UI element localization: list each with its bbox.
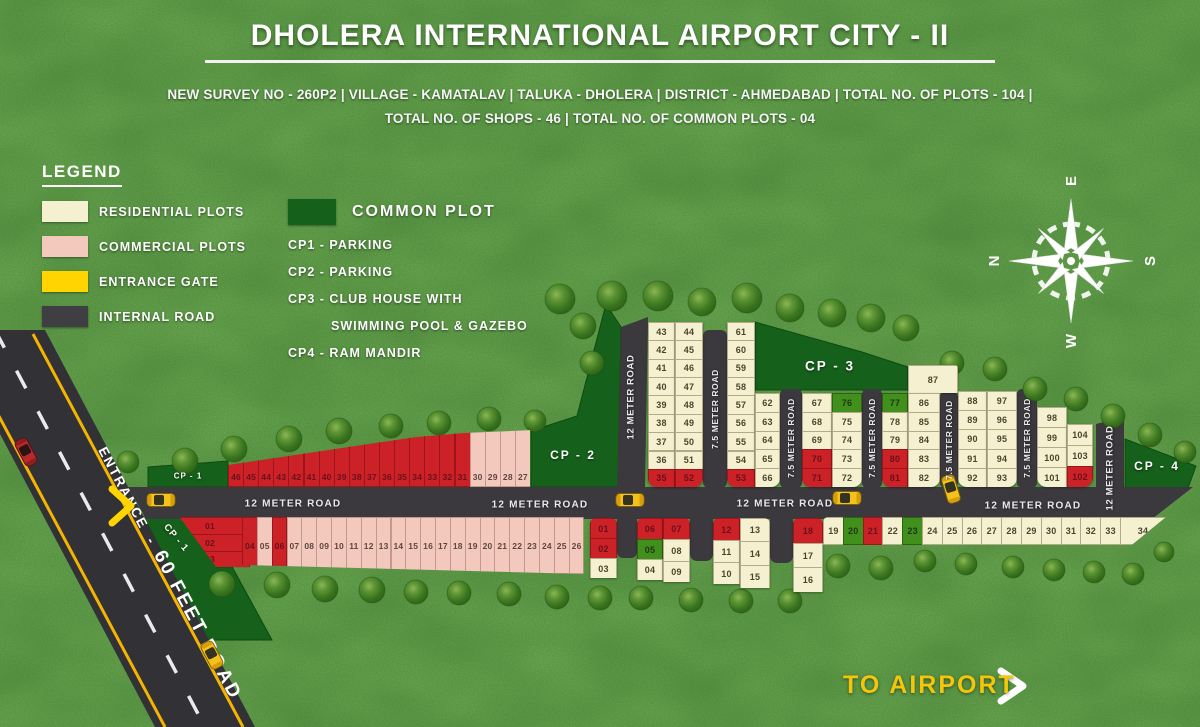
plot-50: 50 [675, 432, 703, 451]
plot-number: 19 [468, 541, 478, 551]
title-underline [205, 60, 995, 63]
plot-number: 42 [656, 345, 666, 355]
plot-17: 17 [793, 543, 823, 569]
shop-09: 09 [316, 517, 332, 574]
legend-title: LEGEND [42, 162, 122, 187]
plot-number: 55 [736, 437, 746, 447]
road-label-7.5m: 7.5 METER ROAD [786, 398, 796, 478]
road-label-7.5m: 7.5 METER ROAD [710, 369, 720, 449]
shop-07: 07 [287, 517, 303, 574]
plot-43: 43 [648, 322, 675, 341]
plot-33: 33 [1100, 517, 1121, 545]
plot-21: 21 [863, 517, 884, 545]
shop-43: 43 [273, 429, 289, 487]
plot-number: 89 [967, 415, 977, 425]
plot-number: 35 [656, 473, 666, 483]
plot-number: 40 [656, 382, 666, 392]
plot-number: 57 [736, 400, 746, 410]
shop-29: 29 [485, 429, 501, 487]
plot-number: 41 [656, 363, 666, 373]
plot-63: 63 [755, 412, 780, 432]
plot-97: 97 [987, 391, 1017, 411]
plot-47: 47 [675, 377, 703, 396]
plot-number: 07 [671, 524, 681, 534]
plot-number: 92 [967, 473, 977, 483]
plot-number: 93 [997, 473, 1007, 483]
plot-number: 87 [928, 375, 938, 385]
plot-number: 45 [246, 472, 256, 482]
shop-27: 27 [515, 429, 530, 487]
survey-info-line2: TOTAL NO. OF SHOPS - 46 | TOTAL NO. OF C… [0, 111, 1200, 126]
plot-number: 30 [473, 472, 483, 482]
plot-number: 72 [842, 473, 852, 483]
shop-31: 31 [455, 429, 471, 487]
plot-number: 22 [888, 526, 898, 536]
plot-number: 75 [842, 417, 852, 427]
plot-number: 11 [722, 547, 732, 557]
plot-number: 37 [367, 472, 377, 482]
shop-42: 42 [288, 429, 304, 487]
plot-06: 06 [637, 518, 663, 540]
plot-number: 50 [684, 437, 694, 447]
plot-number: 14 [393, 541, 403, 551]
plot-grid: 4342414039383736354445464748495051526160… [0, 0, 1200, 727]
shop-10: 10 [331, 517, 347, 574]
plot-07: 07 [663, 518, 690, 540]
plot-group-shopsBottom: 0405060708091011121314151617181920212223… [242, 517, 584, 574]
plot-number: 80 [890, 454, 900, 464]
page-title: DHOLERA INTERNATIONAL AIRPORT CITY - II [0, 19, 1200, 53]
plot-02: 02 [590, 538, 617, 559]
common-plot-swatch [288, 199, 336, 225]
plot-04: 04 [637, 559, 663, 580]
shop-14: 14 [391, 517, 407, 574]
plot-number: 19 [828, 526, 838, 536]
plot-22: 22 [882, 517, 903, 545]
plot-number: 38 [656, 418, 666, 428]
plot-number: 29 [488, 472, 498, 482]
plot-05: 05 [637, 539, 663, 561]
shop-35: 35 [394, 429, 410, 487]
plot-number: 38 [352, 472, 362, 482]
plot-29: 29 [1021, 517, 1042, 545]
to-airport-label: TO AIRPORT [843, 671, 1016, 700]
shop-41: 41 [304, 429, 320, 487]
plot-76: 76 [832, 393, 862, 413]
internal-road-swatch [42, 306, 88, 327]
plot-27: 27 [981, 517, 1002, 545]
plot-104: 104 [1067, 424, 1093, 446]
shop-30: 30 [470, 429, 486, 487]
plot-number: 10 [721, 569, 731, 579]
plot-01: 01 [590, 518, 617, 539]
plot-59: 59 [727, 359, 755, 378]
plot-67: 67 [802, 393, 832, 413]
shop-20: 20 [480, 517, 496, 574]
shop-06: 06 [272, 517, 288, 574]
plot-69: 69 [802, 431, 832, 451]
plot-number: 40 [322, 472, 332, 482]
plot-number: 48 [684, 400, 694, 410]
plot-number: 56 [736, 418, 746, 428]
plot-35: 35 [648, 469, 675, 487]
plot-23: 23 [902, 517, 923, 545]
plot-number: 69 [812, 435, 822, 445]
plot-number: 28 [503, 472, 513, 482]
plot-number: 77 [890, 398, 900, 408]
plot-number: 11 [349, 541, 358, 551]
residential-swatch [42, 201, 88, 222]
plot-number: 99 [1047, 433, 1057, 443]
plot-number: 85 [919, 417, 929, 427]
plot-number: 41 [307, 472, 317, 482]
plot-number: 13 [750, 525, 760, 535]
shop-34: 34 [409, 429, 425, 487]
shop-18: 18 [450, 517, 466, 574]
plot-number: 24 [927, 526, 937, 536]
road-label-7.5m: 7.5 METER ROAD [867, 398, 877, 478]
shop-44: 44 [258, 429, 274, 487]
shop-36: 36 [379, 429, 395, 487]
shop-45: 45 [243, 429, 259, 487]
plot-72: 72 [832, 468, 862, 487]
plot-44: 44 [675, 322, 703, 341]
plot-number: 20 [483, 541, 493, 551]
shop-40: 40 [319, 429, 335, 487]
shop-13: 13 [376, 517, 392, 574]
shop-38: 38 [349, 429, 365, 487]
legend-item-internal-road: INTERNAL ROAD [42, 306, 246, 327]
plot-number: 27 [518, 472, 528, 482]
plot-10: 10 [713, 562, 740, 584]
plot-number: 31 [458, 472, 468, 482]
plot-number: 12 [721, 525, 731, 535]
plot-number: 35 [397, 472, 407, 482]
plot-number: 36 [382, 472, 392, 482]
plot-number: 44 [684, 327, 694, 337]
plot-09: 09 [663, 561, 690, 582]
plot-80: 80 [882, 449, 908, 469]
plot-96: 96 [987, 410, 1017, 430]
plot-number: 60 [736, 345, 746, 355]
plot-number: 68 [812, 417, 822, 427]
road-label-12m: 12 METER ROAD [245, 499, 342, 510]
plot-78: 78 [882, 412, 908, 432]
plot-number: 39 [656, 400, 666, 410]
plot-39: 39 [648, 395, 675, 414]
shop-05: 05 [257, 517, 273, 574]
plot-number: 64 [762, 435, 772, 445]
plot-number: 06 [275, 541, 285, 551]
plot-number: 54 [736, 455, 746, 465]
plot-number: 04 [645, 565, 655, 575]
plot-number: 83 [919, 454, 929, 464]
plot-number: 100 [1044, 453, 1060, 463]
plot-group-shopsTop: 4645444342414039383736353433323130292827 [228, 429, 530, 487]
shop-33: 33 [424, 429, 440, 487]
plot-number: 05 [645, 545, 655, 555]
plot-70: 70 [802, 449, 832, 469]
plot-number: 104 [1072, 430, 1088, 440]
plot-46: 46 [675, 359, 703, 378]
plot-64: 64 [755, 431, 780, 451]
plot-group-colE: 6768697071 [802, 393, 832, 487]
plot-number: 01 [598, 524, 608, 534]
plot-93: 93 [987, 468, 1017, 487]
plot-number: 37 [656, 437, 666, 447]
plot-group-row19: 19202122232425262728293031323334 [823, 517, 1166, 545]
plot-number: 61 [736, 327, 746, 337]
plot-18: 18 [793, 518, 823, 544]
shop-19: 19 [465, 517, 481, 574]
plot-group-b3a: 121110 [713, 518, 740, 584]
plot-number: 90 [967, 434, 977, 444]
plot-number: 02 [205, 538, 215, 548]
plot-number: 43 [276, 472, 286, 482]
road-label-12m: 12 METER ROAD [492, 500, 589, 511]
plot-40: 40 [648, 377, 675, 396]
plot-number: 23 [527, 541, 537, 551]
plot-number: 81 [890, 473, 900, 483]
plot-number: 31 [1066, 526, 1076, 536]
road-label-12m-vertical: 12 METER ROAD [1105, 426, 1116, 511]
plot-number: 30 [1046, 526, 1056, 536]
plot-number: 39 [337, 472, 347, 482]
plot-number: 05 [260, 541, 270, 551]
plot-12: 12 [713, 518, 740, 541]
shop-12: 12 [361, 517, 377, 574]
plot-number: 03 [205, 554, 215, 564]
plot-34: 34 [1120, 517, 1166, 545]
shop-37: 37 [364, 429, 380, 487]
plot-number: 62 [762, 398, 772, 408]
plot-88: 88 [958, 391, 987, 411]
plot-number: 52 [684, 473, 694, 483]
plot-group-colD: 6263646566 [755, 393, 780, 487]
legend-item-residential: RESIDENTIAL PLOTS [42, 201, 246, 222]
plot-group-b2b: 070809 [663, 518, 690, 582]
site-layout-map: ENTRANCE - 60 FEET ROAD [0, 0, 1200, 727]
plot-number: 28 [1006, 526, 1016, 536]
plot-49: 49 [675, 414, 703, 433]
plot-group-colL: 104103102 [1067, 424, 1093, 487]
plot-number: 20 [848, 526, 858, 536]
plot-number: 98 [1047, 413, 1057, 423]
plot-number: 34 [1138, 526, 1148, 536]
plot-number: 49 [684, 418, 694, 428]
plot-group-colK: 9899100101 [1037, 407, 1067, 487]
plot-number: 101 [1044, 473, 1060, 483]
plot-45: 45 [675, 340, 703, 359]
road-label-7.5m: 7.5 METER ROAD [1022, 398, 1032, 478]
plot-number: 74 [842, 435, 852, 445]
plot-number: 26 [572, 541, 582, 551]
plot-number: 34 [412, 472, 422, 482]
plot-13: 13 [740, 518, 770, 542]
plot-number: 103 [1072, 451, 1088, 461]
plot-number: 14 [750, 549, 760, 559]
plot-number: 15 [408, 541, 418, 551]
shop-25: 25 [554, 517, 570, 574]
plot-number: 76 [842, 398, 852, 408]
plot-number: 18 [453, 541, 463, 551]
plot-86: 86 [908, 393, 940, 413]
plot-98: 98 [1037, 407, 1067, 428]
plot-group-colC: 616059585756555453 [727, 322, 755, 487]
plot-number: 08 [671, 546, 681, 556]
plot-90: 90 [958, 429, 987, 449]
survey-info-line1: NEW SURVEY NO - 260P2 | VILLAGE - KAMATA… [0, 87, 1200, 102]
plot-38: 38 [648, 414, 675, 433]
shop-11: 11 [346, 517, 362, 574]
cp1-upper-label: CP - 1 [174, 472, 203, 481]
plot-14: 14 [740, 541, 770, 565]
plot-number: 33 [427, 472, 437, 482]
plot-number: 21 [497, 541, 507, 551]
plot-number: 44 [261, 472, 271, 482]
plot-61: 61 [727, 322, 755, 341]
plot-group-colH: 8685848382 [908, 393, 940, 487]
plot-92: 92 [958, 468, 987, 487]
cp3-note: CP3 - CLUB HOUSE WITH [288, 292, 528, 306]
legend: LEGEND RESIDENTIAL PLOTS COMMERCIAL PLOT… [42, 162, 246, 327]
plot-48: 48 [675, 395, 703, 414]
plot-53: 53 [727, 469, 755, 487]
shop-28: 28 [500, 429, 516, 487]
plot-number: 02 [598, 544, 608, 554]
plot-57: 57 [727, 395, 755, 414]
plot-number: 13 [379, 541, 389, 551]
plot-number: 04 [245, 541, 255, 551]
shop-16: 16 [420, 517, 436, 574]
cp2-label: CP - 2 [550, 448, 596, 462]
plot-100: 100 [1037, 447, 1067, 468]
plot-number: 102 [1072, 472, 1088, 482]
plot-number: 17 [438, 541, 448, 551]
plot-number: 27 [987, 526, 997, 536]
plot-65: 65 [755, 449, 780, 469]
plot-number: 25 [947, 526, 957, 536]
plot-75: 75 [832, 412, 862, 432]
plot-number: 32 [1086, 526, 1096, 536]
legend-item-entrance-gate: ENTRANCE GATE [42, 271, 246, 292]
plot-36: 36 [648, 451, 675, 470]
plot-number: 09 [671, 567, 681, 577]
road-label-7.5m: 7.5 METER ROAD [944, 400, 954, 480]
plot-71: 71 [802, 468, 832, 487]
road-label-12m: 12 METER ROAD [737, 499, 834, 510]
plot-number: 86 [919, 398, 929, 408]
plot-group-b3b: 131415 [740, 518, 770, 588]
shop-01: 01 [170, 517, 250, 535]
plot-25: 25 [942, 517, 963, 545]
cp4-note: CP4 - RAM MANDIR [288, 346, 528, 360]
plot-number: 24 [542, 541, 552, 551]
plot-number: 43 [656, 327, 666, 337]
plot-08: 08 [663, 539, 690, 561]
plot-103: 103 [1067, 445, 1093, 467]
plot-60: 60 [727, 340, 755, 359]
shop-46: 46 [228, 429, 244, 487]
plot-84: 84 [908, 431, 940, 451]
plot-number: 79 [890, 435, 900, 445]
plot-number: 01 [205, 521, 215, 531]
shop-21: 21 [494, 517, 510, 574]
plot-group-p87: 87 [908, 365, 958, 393]
plot-number: 08 [304, 541, 314, 551]
commercial-swatch [42, 236, 88, 257]
road-label-12m-vertical: 12 METER ROAD [626, 355, 637, 440]
plot-11: 11 [713, 540, 740, 563]
plot-number: 97 [997, 396, 1007, 406]
plot-91: 91 [958, 449, 987, 469]
plot-number: 29 [1026, 526, 1036, 536]
plot-19: 19 [823, 517, 844, 545]
plot-82: 82 [908, 468, 940, 487]
plot-95: 95 [987, 429, 1017, 449]
shop-08: 08 [301, 517, 317, 574]
plot-number: 51 [684, 455, 694, 465]
shop-39: 39 [334, 429, 350, 487]
plot-number: 47 [684, 382, 694, 392]
plot-number: 22 [512, 541, 522, 551]
plot-number: 25 [557, 541, 567, 551]
plot-52: 52 [675, 469, 703, 487]
plot-99: 99 [1037, 427, 1067, 448]
plot-16: 16 [793, 567, 823, 592]
plot-number: 71 [812, 473, 822, 483]
plot-number: 95 [997, 434, 1007, 444]
plot-number: 32 [443, 472, 453, 482]
plot-number: 17 [803, 551, 813, 561]
plot-number: 07 [289, 541, 299, 551]
plot-number: 45 [684, 345, 694, 355]
plot-number: 84 [919, 435, 929, 445]
plot-group-colA: 434241403938373635 [648, 322, 675, 487]
plot-102: 102 [1067, 466, 1093, 487]
plot-03: 03 [590, 558, 617, 578]
plot-28: 28 [1001, 517, 1022, 545]
plot-15: 15 [740, 565, 770, 588]
plot-79: 79 [882, 431, 908, 451]
plot-number: 26 [967, 526, 977, 536]
plot-group-colF: 7675747372 [832, 393, 862, 487]
plot-group-b4: 181716 [793, 518, 823, 592]
plot-26: 26 [962, 517, 983, 545]
plot-31: 31 [1061, 517, 1082, 545]
plot-group-b1: 010203 [590, 518, 617, 578]
plot-number: 21 [868, 526, 878, 536]
plot-number: 70 [812, 454, 822, 464]
shop-23: 23 [524, 517, 540, 574]
plot-group-colI: 8889909192 [958, 391, 987, 487]
common-plot-legend: COMMON PLOT CP1 - PARKING CP2 - PARKING … [288, 199, 528, 360]
plot-number: 16 [423, 541, 433, 551]
plot-85: 85 [908, 412, 940, 432]
plot-number: 66 [762, 473, 772, 483]
cp4-label: CP - 4 [1134, 459, 1180, 473]
plot-58: 58 [727, 377, 755, 396]
shop-24: 24 [539, 517, 555, 574]
cp1-note: CP1 - PARKING [288, 238, 528, 252]
common-plot-title: COMMON PLOT [352, 203, 496, 221]
plot-94: 94 [987, 449, 1017, 469]
plot-87: 87 [908, 365, 958, 393]
plot-number: 94 [997, 454, 1007, 464]
plot-55: 55 [727, 432, 755, 451]
legend-item-commercial: COMMERCIAL PLOTS [42, 236, 246, 257]
cp2-note: CP2 - PARKING [288, 265, 528, 279]
